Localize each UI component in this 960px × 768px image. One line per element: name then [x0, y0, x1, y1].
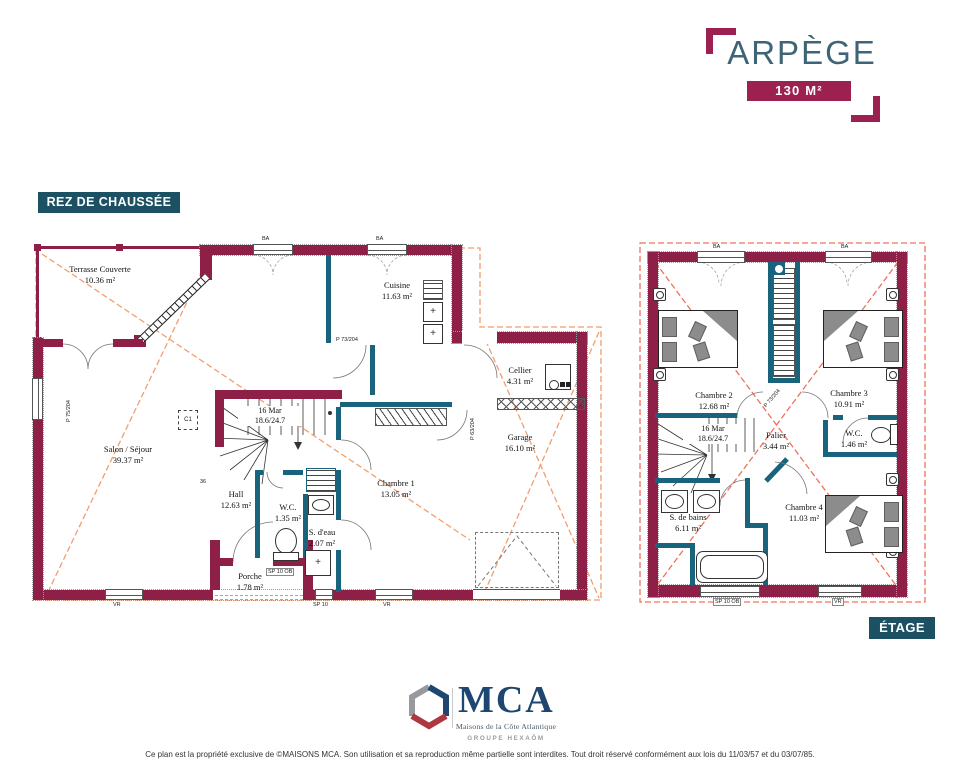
room-label-chambre2: Chambre 2 12.68 m²	[669, 390, 759, 411]
terrace-wall-bottom-left	[38, 339, 63, 347]
stair-rail-post	[328, 411, 332, 415]
partition-bedroom1-top	[340, 402, 452, 407]
chimney-box: C1	[178, 410, 198, 430]
wall-top	[200, 245, 462, 255]
partition-closet-right	[690, 543, 695, 585]
wardrobe-upper	[773, 268, 795, 320]
title-bracket-top-left-arm	[706, 28, 713, 54]
partition-bedroom1-left-b	[336, 470, 341, 520]
bedroom1-wardrobe	[375, 408, 447, 426]
upper-floor-plan: Chambre 2 12.68 m² Chambre 3 10.91 m² Pa…	[635, 240, 935, 612]
room-area: 11.63 m²	[352, 291, 442, 302]
room-name: Chambre 3	[804, 388, 894, 399]
copyright-notice: Ce plan est la propriété exclusive de ©M…	[0, 750, 960, 759]
room-name: Palier	[751, 430, 801, 441]
bed-cushion	[846, 341, 864, 361]
stair-label: 16 Mar 18.6/24.7	[238, 406, 302, 426]
porch-step	[215, 599, 303, 600]
wall-kitchen-right	[452, 245, 462, 343]
bed-blanket	[703, 311, 737, 341]
terrace-wall-left	[36, 246, 39, 342]
room-name: Salon / Séjour	[83, 444, 173, 455]
room-label-garage: Garage 16.10 m²	[475, 432, 565, 453]
room-area: 16.10 m²	[475, 443, 565, 454]
window-tag: BA	[841, 244, 848, 250]
room-area: 12.68 m²	[669, 401, 759, 412]
room-label-salon: Salon / Séjour 39.37 m²	[83, 444, 173, 465]
partition-closet-top	[655, 543, 693, 548]
door-tag: P 73/204	[336, 337, 358, 343]
bedroom4-window	[818, 586, 862, 597]
room-label-cuisine: Cuisine 11.63 m²	[352, 280, 442, 301]
wall-porch-top-left	[220, 558, 233, 566]
door-tag: P 75/204	[66, 400, 72, 422]
cellier-door-opening	[462, 331, 497, 344]
window-tag: BA	[713, 244, 720, 250]
hall-closet	[306, 468, 336, 492]
room-area: 39.37 m²	[83, 455, 173, 466]
room-label-wc: W.C. 1.46 m²	[829, 428, 879, 449]
room-area: 3.44 m²	[751, 441, 801, 452]
room-area: 1.35 m²	[258, 513, 318, 524]
partition-bedroom1-left-c	[336, 550, 341, 592]
terrace-door-arcs	[63, 344, 113, 369]
room-label-terrasse: Terrasse Couverte 10.36 m²	[50, 264, 150, 285]
door-tag: P 63/204	[470, 418, 476, 440]
room-name: Chambre 4	[759, 502, 849, 513]
room-area: 1.78 m²	[215, 582, 285, 593]
partition-wc-top-a	[255, 470, 263, 475]
bathroom-window	[700, 586, 760, 597]
window-tag: SP 10 OB	[266, 568, 294, 576]
room-area: 1.46 m²	[829, 439, 879, 450]
room-area: 10.36 m²	[50, 275, 150, 286]
partition-bathroom-top	[655, 478, 720, 483]
room-area: 2.07 m²	[292, 538, 352, 549]
window-tag: BA	[262, 236, 269, 242]
terrace-post	[34, 244, 41, 251]
stair-label: 16 Mar 18.6/24.7	[683, 424, 743, 444]
wall-stair-left	[215, 390, 224, 447]
stair-count: 16 Mar	[683, 424, 743, 434]
dimension-label: 36	[200, 479, 206, 485]
room-area: 4.31 m²	[475, 376, 565, 387]
wc-door-arc	[267, 472, 283, 488]
wall-stair-top	[218, 390, 342, 399]
partition-bathroom-right	[745, 478, 750, 528]
logo-tagline: Maisons de la Côte Atlantique	[450, 722, 562, 731]
room-name: Cuisine	[352, 280, 442, 291]
plan-title: ARPÈGE	[722, 34, 882, 72]
room-label-palier: Palier 3.44 m²	[751, 430, 801, 451]
partition-bedroom2-bottom	[655, 413, 737, 418]
logo-face-gray	[412, 687, 429, 716]
logo-face-red	[412, 716, 446, 726]
wall-light-icon	[886, 368, 899, 381]
wall-light-icon	[886, 288, 899, 301]
room-name: S. de bains	[648, 512, 728, 523]
garage-door-opening	[473, 589, 560, 600]
window-tag: VR	[383, 602, 391, 608]
wall-bottom	[648, 585, 907, 597]
bedroom2-window	[697, 251, 745, 263]
wc-toilet-tank	[890, 424, 898, 445]
partition-bedroom3-bottom-a	[833, 415, 843, 420]
bedroom1-window	[375, 589, 413, 600]
bed-cushion	[693, 341, 711, 361]
kitchen-window-2	[367, 244, 407, 255]
partition-kitchen-hall	[370, 345, 375, 395]
area-badge: 130 M²	[747, 81, 851, 101]
room-name: Chambre 2	[669, 390, 759, 401]
mca-cube-logo-icon	[408, 684, 450, 730]
bed-pillow	[884, 317, 899, 337]
logo-acronym: MCA	[458, 678, 555, 722]
bathroom-basin	[693, 490, 720, 513]
kitchen-sink	[423, 302, 443, 322]
wardrobe-lower	[773, 324, 795, 377]
ground-floor-plan: C1 Terrasse Couverte 10.36 m² Cuisine 11…	[30, 240, 612, 612]
stair-arrow-head	[294, 442, 302, 450]
flue-vent	[772, 262, 785, 275]
wall-light-icon	[886, 473, 899, 486]
room-name: Hall	[191, 489, 281, 500]
logo-group: GROUPE HEXAŌM	[450, 735, 562, 742]
bedroom3-bed	[823, 310, 903, 368]
window-tag: VR	[832, 598, 844, 606]
room-label-chambre4: Chambre 4 11.03 m²	[759, 502, 849, 523]
partition-bedroom1-left-a	[336, 407, 341, 440]
bed-pillow	[884, 502, 899, 522]
room-label-chambre1: Chambre 1 13.05 m²	[351, 478, 441, 499]
title-bracket-bottom-right	[851, 115, 880, 122]
bathroom-basin	[661, 490, 688, 513]
partition-wardrobe-cap	[768, 378, 800, 383]
salon-window	[105, 589, 143, 600]
washer-knob-icon	[566, 382, 571, 387]
bed-pillow	[662, 342, 677, 362]
entry-door-arc	[233, 522, 273, 562]
partition-bedroom3-bottom-b	[868, 415, 897, 420]
bed-pillow	[884, 527, 899, 547]
room-name: Garage	[475, 432, 565, 443]
bathtub	[696, 551, 768, 583]
bedroom2-bed	[658, 310, 738, 368]
room-label-wc: W.C. 1.35 m²	[258, 502, 318, 523]
shower-tray	[305, 550, 331, 576]
shower-room-window	[315, 589, 333, 600]
logo-face-blue	[429, 687, 446, 716]
bed-pillow	[662, 317, 677, 337]
room-name: Terrasse Couverte	[50, 264, 150, 275]
stair-dims: 18.6/24.7	[238, 416, 302, 426]
partition-wc-bottom	[823, 452, 897, 457]
room-label-cellier: Cellier 4.31 m²	[475, 365, 565, 386]
chimney-label: C1	[184, 417, 192, 423]
wc-toilet-tank	[273, 552, 299, 561]
stair-count: 16 Mar	[238, 406, 302, 416]
room-area: 10.91 m²	[804, 399, 894, 410]
bedroom1-door-arc	[341, 440, 371, 470]
wall-light-icon	[653, 288, 666, 301]
window-tag: VR	[113, 602, 121, 608]
room-name: W.C.	[258, 502, 318, 513]
partition-kitchen-left	[326, 255, 331, 343]
bed-cushion	[846, 526, 864, 546]
garage-door-zone	[475, 532, 559, 588]
wall-right	[577, 332, 587, 600]
bathroom-door-arc	[720, 480, 746, 506]
window-tag: SP 10 OB	[713, 598, 741, 606]
kitchen-door-arc	[333, 345, 366, 378]
room-name: Cellier	[475, 365, 565, 376]
kitchen-window	[253, 244, 293, 255]
cellier-garage-wall	[497, 398, 585, 410]
partition-wc-top-b	[283, 470, 303, 475]
terrace-post	[116, 244, 123, 251]
room-name: Chambre 1	[351, 478, 441, 489]
room-area: 6.11 m²	[648, 523, 728, 534]
kitchen-hob	[423, 324, 443, 344]
room-label-sdeau: S. d'eau 2.07 m²	[292, 527, 352, 548]
room-label-sdb: S. de bains 6.11 m²	[648, 512, 728, 533]
room-area: 11.03 m²	[759, 513, 849, 524]
bedroom3-window	[825, 251, 872, 263]
ground-floor-badge: REZ DE CHAUSSÉE	[38, 192, 180, 213]
upper-floor-badge: ÉTAGE	[869, 617, 935, 639]
floor-plan-sheet: ARPÈGE 130 M² REZ DE CHAUSSÉE ÉTAGE	[0, 0, 960, 768]
window-tag: BA	[376, 236, 383, 242]
salon-side-window	[32, 378, 43, 420]
room-area: 13.05 m²	[351, 489, 441, 500]
room-label-chambre3: Chambre 3 10.91 m²	[804, 388, 894, 409]
stair-dims: 18.6/24.7	[683, 434, 743, 444]
porch-step	[215, 595, 303, 596]
partition-wardrobe-right	[795, 262, 800, 382]
wall-light-icon	[653, 368, 666, 381]
room-name: S. d'eau	[292, 527, 352, 538]
room-name: W.C.	[829, 428, 879, 439]
terrace-wall-bottom-right	[113, 339, 143, 347]
window-tag: SP 10	[313, 602, 328, 608]
bed-pillow	[884, 342, 899, 362]
